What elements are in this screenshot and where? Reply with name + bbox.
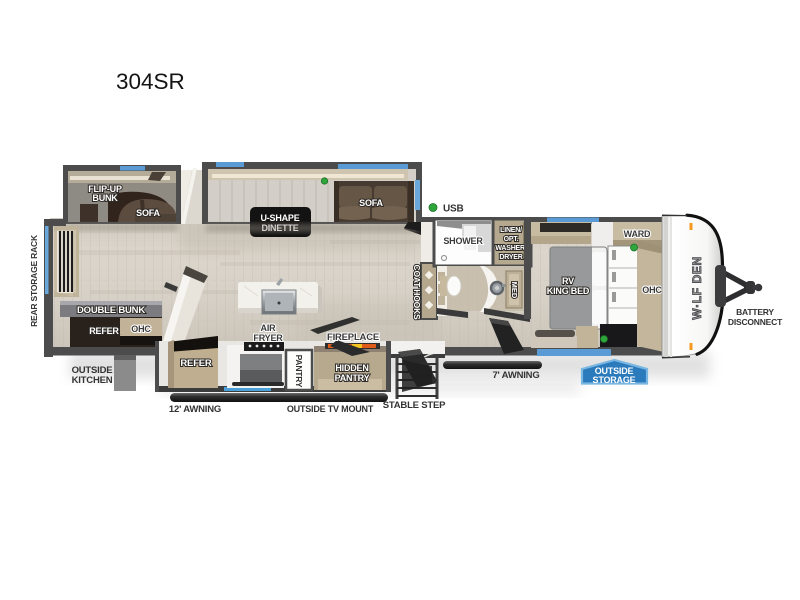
svg-text:FRYER: FRYER <box>253 333 283 343</box>
svg-text:COAT HOOKS: COAT HOOKS <box>412 265 422 321</box>
svg-text:SOFA: SOFA <box>359 198 383 208</box>
svg-text:U-SHAPE: U-SHAPE <box>260 213 299 223</box>
svg-text:WASHER/: WASHER/ <box>495 245 527 252</box>
svg-text:FIREPLACE: FIREPLACE <box>327 332 379 343</box>
svg-text:DISCONNECT: DISCONNECT <box>728 317 783 327</box>
svg-text:STABLE STEP: STABLE STEP <box>383 400 446 411</box>
svg-text:USB: USB <box>443 204 464 215</box>
svg-text:BATTERY: BATTERY <box>736 307 774 317</box>
svg-text:DRYER: DRYER <box>499 254 522 261</box>
svg-text:BUNK: BUNK <box>92 193 118 203</box>
svg-text:W·LF DEN: W·LF DEN <box>690 256 704 319</box>
svg-text:PANTRY: PANTRY <box>335 373 370 383</box>
svg-text:OHC: OHC <box>642 285 662 295</box>
svg-text:KING BED: KING BED <box>547 286 590 296</box>
svg-text:OUTSIDE TV MOUNT: OUTSIDE TV MOUNT <box>287 404 374 414</box>
svg-text:PANTRY: PANTRY <box>294 355 304 388</box>
svg-text:REFER: REFER <box>180 358 212 369</box>
svg-text:SHOWER: SHOWER <box>443 236 483 246</box>
svg-text:304SR: 304SR <box>116 69 185 94</box>
svg-text:MED: MED <box>510 282 519 299</box>
svg-text:HIDDEN: HIDDEN <box>335 363 368 373</box>
svg-text:REFER: REFER <box>89 326 119 336</box>
svg-text:REAR STORAGE RACK: REAR STORAGE RACK <box>29 234 39 327</box>
svg-text:OPT.: OPT. <box>504 236 519 243</box>
svg-text:DOUBLE BUNK: DOUBLE BUNK <box>77 305 145 316</box>
svg-text:12' AWNING: 12' AWNING <box>169 404 221 415</box>
svg-text:7' AWNING: 7' AWNING <box>492 370 539 381</box>
svg-text:WARD: WARD <box>624 229 651 239</box>
svg-text:KITCHEN: KITCHEN <box>72 375 113 386</box>
svg-text:AIR: AIR <box>261 323 277 333</box>
svg-text:OHC: OHC <box>131 324 151 334</box>
svg-text:SOFA: SOFA <box>136 208 160 218</box>
svg-text:RV: RV <box>562 276 574 286</box>
svg-text:LINEN/: LINEN/ <box>500 227 522 234</box>
svg-text:STORAGE: STORAGE <box>593 375 636 385</box>
